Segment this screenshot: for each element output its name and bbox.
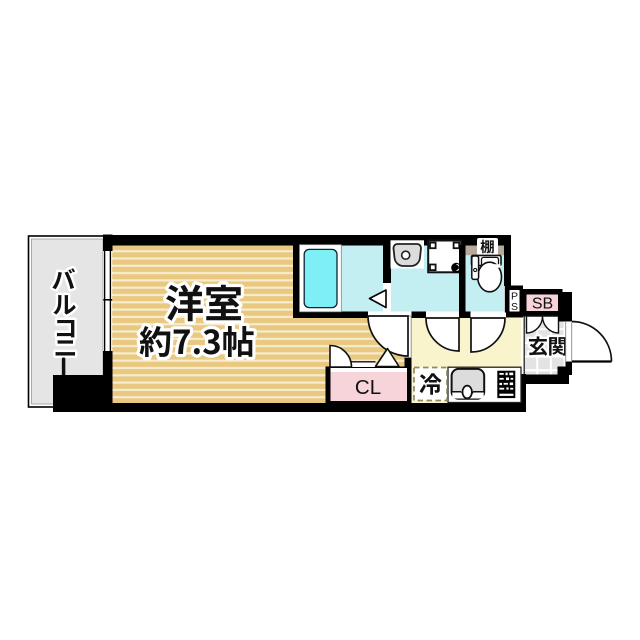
svg-text:S: S bbox=[511, 301, 518, 313]
svg-text:SB: SB bbox=[532, 296, 553, 313]
svg-text:CL: CL bbox=[355, 376, 381, 399]
